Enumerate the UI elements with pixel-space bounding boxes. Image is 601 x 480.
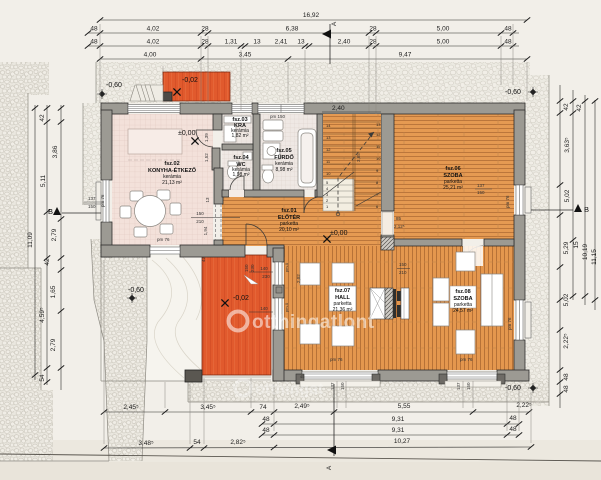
svg-text:otthingatlont: otthingatlont	[252, 312, 375, 333]
svg-text:140: 140	[260, 306, 268, 311]
svg-text:pm-0: pm-0	[284, 262, 289, 272]
svg-text:48: 48	[509, 426, 517, 433]
svg-text:42: 42	[201, 256, 206, 262]
svg-text:3,45: 3,45	[239, 52, 252, 59]
svg-text:13: 13	[376, 122, 381, 127]
svg-text:2,40: 2,40	[338, 39, 351, 46]
svg-text:24,57 m²: 24,57 m²	[453, 308, 473, 314]
svg-text:21,13 m²: 21,13 m²	[162, 180, 182, 186]
svg-text:1,39: 1,39	[204, 133, 209, 142]
svg-text:1,82 m²: 1,82 m²	[232, 133, 249, 139]
svg-text:137: 137	[330, 382, 335, 390]
svg-text:pm 76: pm 76	[330, 357, 343, 362]
svg-text:1,65: 1,65	[50, 285, 57, 298]
svg-text:pm 76: pm 76	[505, 195, 510, 208]
svg-text:10,19: 10,19	[582, 243, 589, 260]
svg-text:1,31: 1,31	[225, 39, 238, 46]
svg-text:28: 28	[201, 26, 209, 33]
svg-text:2,22⁵: 2,22⁵	[563, 333, 570, 349]
svg-text:48: 48	[90, 39, 98, 46]
svg-text:1,52: 1,52	[204, 153, 209, 162]
svg-text:42: 42	[39, 114, 46, 122]
svg-text:fsz.07: fsz.07	[335, 288, 350, 294]
svg-text:5,02: 5,02	[563, 293, 570, 306]
svg-text:4,00: 4,00	[144, 52, 157, 59]
svg-text:ELŐTÉR: ELŐTÉR	[278, 213, 300, 221]
svg-text:85: 85	[396, 216, 402, 221]
svg-text:210: 210	[196, 219, 204, 224]
svg-text:12: 12	[326, 147, 331, 152]
svg-text:42: 42	[563, 103, 570, 111]
svg-text:210: 210	[399, 270, 407, 275]
svg-text:-0,60: -0,60	[505, 89, 521, 96]
svg-text:4,02: 4,02	[147, 26, 160, 33]
svg-text:fsz.06: fsz.06	[445, 166, 460, 172]
svg-text:pm 76: pm 76	[460, 357, 473, 362]
svg-text:6,38: 6,38	[286, 26, 299, 33]
svg-text:230: 230	[262, 274, 270, 279]
svg-text:48: 48	[563, 385, 570, 393]
svg-text:10,27: 10,27	[394, 438, 411, 445]
svg-text:137: 137	[477, 183, 485, 188]
svg-text:150: 150	[196, 211, 204, 216]
svg-text:A: A	[331, 21, 338, 26]
svg-text:2,12⁵: 2,12⁵	[394, 224, 405, 229]
svg-text:fsz.08: fsz.08	[455, 289, 470, 295]
svg-text:4,02: 4,02	[147, 39, 160, 46]
svg-text:42: 42	[44, 258, 51, 266]
svg-text:3,45⁵: 3,45⁵	[200, 404, 216, 411]
svg-text:±0,00: ±0,00	[178, 130, 196, 137]
svg-text:pm 150: pm 150	[270, 114, 286, 119]
svg-text:-0,60: -0,60	[505, 385, 521, 392]
svg-text:230: 230	[250, 264, 255, 272]
svg-text:pm-0: pm-0	[284, 302, 289, 312]
svg-text:13: 13	[253, 39, 261, 46]
svg-text:8,98 m²: 8,98 m²	[276, 167, 293, 173]
svg-text:150: 150	[88, 204, 96, 209]
svg-text:9,31: 9,31	[392, 427, 405, 434]
svg-text:14: 14	[326, 123, 331, 128]
svg-text:3,48⁵: 3,48⁵	[138, 440, 154, 447]
svg-text:150: 150	[244, 264, 249, 272]
svg-text:11,15: 11,15	[591, 249, 598, 265]
svg-text:137: 137	[456, 382, 461, 390]
svg-text:13: 13	[205, 197, 210, 203]
svg-text:A: A	[326, 465, 333, 470]
svg-text:45: 45	[300, 374, 305, 379]
svg-text:3,86: 3,86	[52, 145, 59, 158]
svg-text:fsz.05: fsz.05	[276, 148, 291, 154]
svg-text:48: 48	[90, 26, 98, 33]
svg-text:3,63⁵: 3,63⁵	[564, 137, 571, 153]
svg-text:2,02: 2,02	[296, 274, 301, 283]
svg-text:2,45⁵: 2,45⁵	[123, 404, 139, 411]
svg-text:140: 140	[260, 266, 268, 271]
svg-text:±0,00: ±0,00	[330, 230, 348, 237]
svg-text:pm 76: pm 76	[100, 194, 105, 207]
svg-text:5,00: 5,00	[437, 26, 450, 33]
svg-text:9,47: 9,47	[399, 52, 412, 59]
svg-text:25,21 m²: 25,21 m²	[443, 185, 463, 191]
svg-text:2,79: 2,79	[51, 228, 58, 241]
svg-text:48: 48	[509, 415, 517, 422]
svg-text:pm 76: pm 76	[157, 237, 170, 242]
svg-text:5,02: 5,02	[564, 189, 571, 202]
svg-text:54: 54	[193, 439, 201, 446]
svg-text:42: 42	[576, 104, 583, 112]
svg-text:2,79: 2,79	[50, 338, 57, 351]
svg-text:48: 48	[504, 26, 512, 33]
svg-text:12: 12	[376, 132, 381, 137]
svg-text:74: 74	[259, 404, 267, 411]
svg-text:1,98 m²: 1,98 m²	[233, 172, 250, 178]
svg-text:5,55: 5,55	[398, 403, 411, 410]
svg-text:28: 28	[369, 26, 377, 33]
svg-text:137: 137	[88, 196, 96, 201]
svg-text:2,49⁵: 2,49⁵	[294, 403, 310, 410]
svg-text:otthingat: otthingat	[255, 381, 324, 398]
svg-text:150: 150	[466, 382, 471, 390]
svg-text:9,31: 9,31	[392, 416, 405, 423]
svg-text:48: 48	[563, 373, 570, 381]
svg-text:150: 150	[340, 382, 345, 390]
svg-text:13: 13	[326, 135, 331, 140]
svg-text:16,92: 16,92	[303, 12, 320, 19]
svg-text:11,09: 11,09	[27, 232, 34, 248]
svg-text:-0,60: -0,60	[128, 287, 144, 294]
svg-text:5,29: 5,29	[563, 241, 570, 254]
svg-text:10: 10	[376, 156, 381, 161]
svg-text:5,00: 5,00	[437, 39, 450, 46]
svg-text:2,22⁵: 2,22⁵	[516, 402, 532, 409]
svg-text:pm 76: pm 76	[507, 317, 512, 330]
svg-text:B: B	[48, 207, 53, 216]
svg-text:54: 54	[39, 374, 46, 382]
svg-text:1,94: 1,94	[203, 226, 208, 235]
svg-text:20,10 m²: 20,10 m²	[279, 227, 299, 233]
svg-text:13: 13	[297, 39, 305, 46]
svg-text:15: 15	[573, 241, 580, 249]
svg-text:-0,02: -0,02	[182, 77, 198, 84]
svg-text:B: B	[584, 205, 589, 214]
svg-text:10: 10	[326, 171, 331, 176]
svg-text:fsz.04: fsz.04	[233, 155, 249, 161]
svg-text:2,82⁵: 2,82⁵	[230, 439, 246, 446]
svg-text:2,41: 2,41	[275, 39, 288, 46]
svg-text:48: 48	[262, 416, 270, 423]
svg-text:48: 48	[504, 39, 512, 46]
svg-text:3,65: 3,65	[356, 153, 361, 162]
svg-text:2,40: 2,40	[332, 105, 345, 112]
svg-text:-0,60: -0,60	[106, 82, 122, 89]
svg-text:FÜRDŐ: FÜRDŐ	[274, 154, 294, 161]
svg-text:5,11: 5,11	[40, 175, 47, 188]
svg-text:KONYHA-ÉTKEZŐ: KONYHA-ÉTKEZŐ	[148, 166, 197, 174]
svg-text:-0,02: -0,02	[233, 295, 249, 302]
svg-text:4,59⁵: 4,59⁵	[39, 307, 46, 323]
svg-text:150: 150	[477, 190, 485, 195]
svg-text:fsz.02: fsz.02	[164, 161, 179, 167]
svg-text:150: 150	[399, 262, 407, 267]
svg-text:fsz.01: fsz.01	[281, 208, 296, 214]
svg-text:48: 48	[262, 427, 270, 434]
